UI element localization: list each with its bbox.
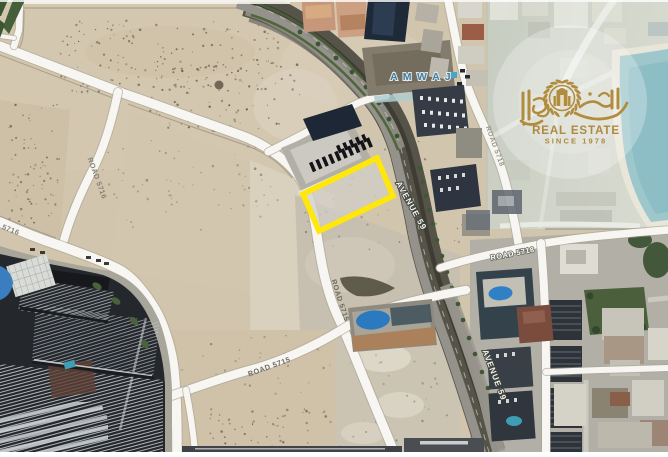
svg-text:REAL ESTATE: REAL ESTATE [532, 125, 620, 137]
svg-text:A M W A J: A M W A J [390, 71, 452, 83]
svg-text:SINCE 1978: SINCE 1978 [545, 137, 608, 146]
